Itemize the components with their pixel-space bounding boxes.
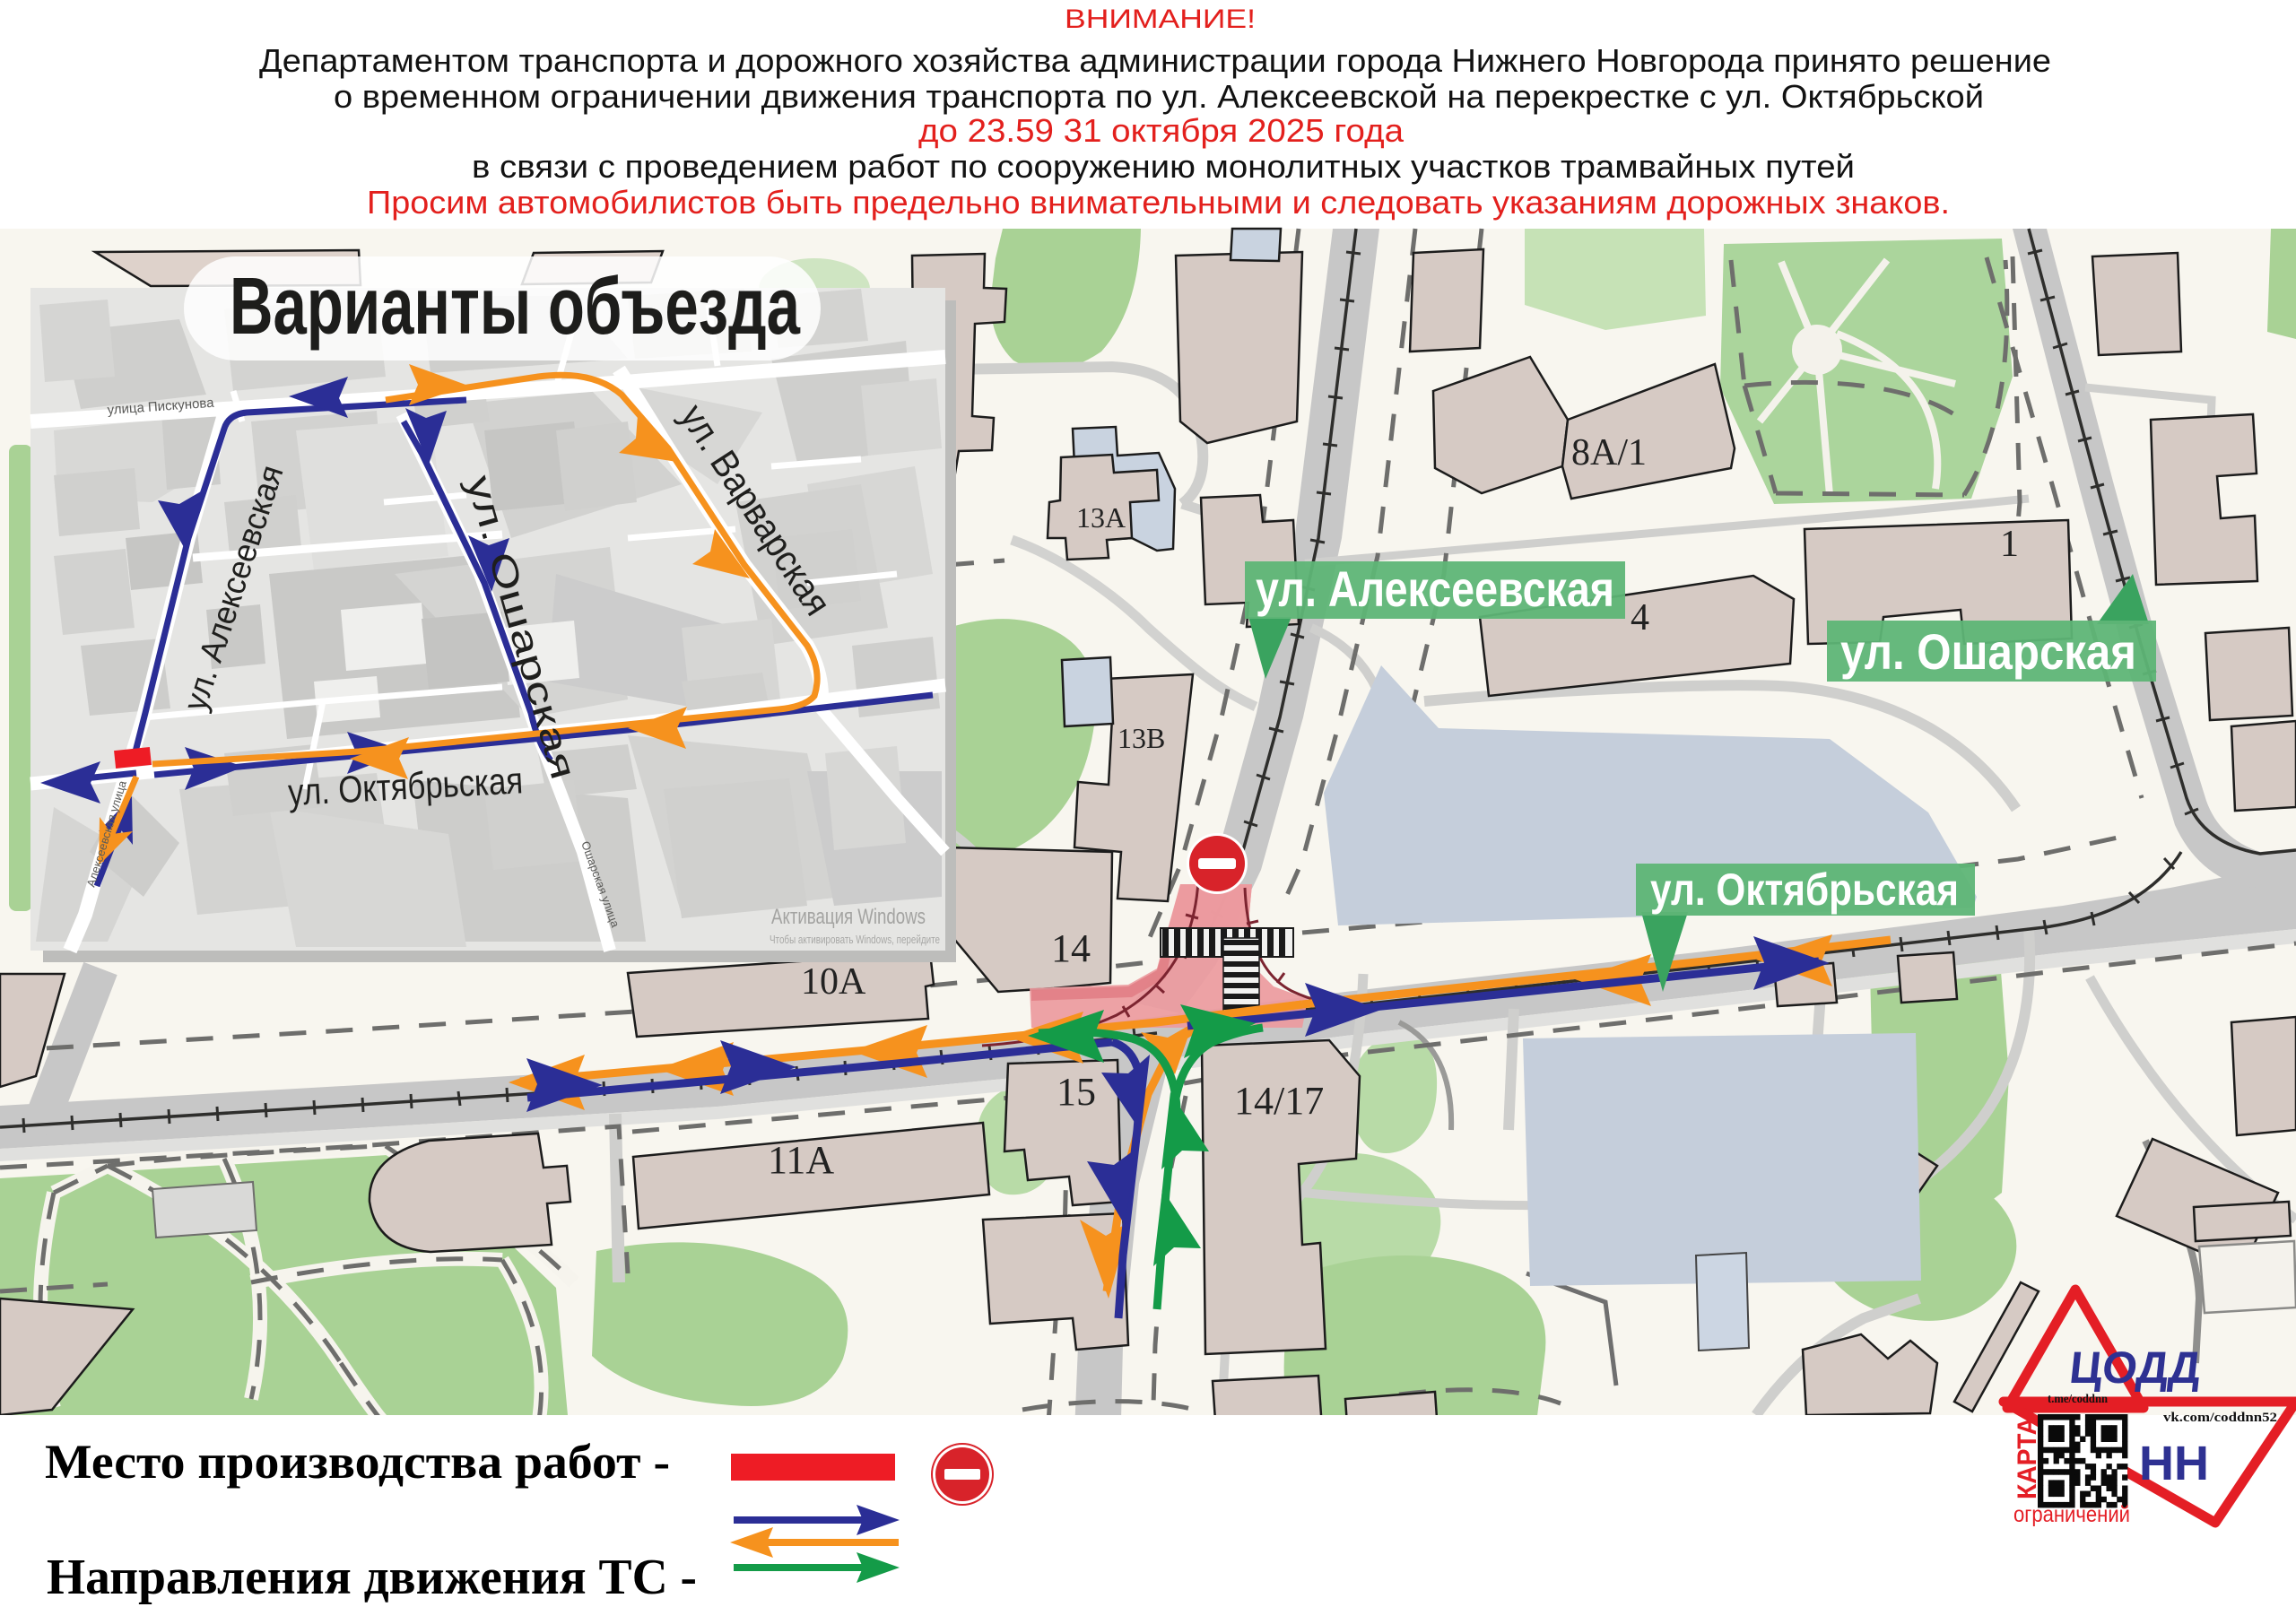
svg-text:1: 1 <box>2000 524 2019 565</box>
svg-text:ул. Ошарская: ул. Ошарская <box>1840 623 2136 680</box>
svg-text:КАРТА: КАРТА <box>2013 1417 2042 1499</box>
svg-text:t.me/coddnn: t.me/coddnn <box>2048 1393 2108 1406</box>
svg-text:в связи с проведением работ по: в связи с проведением работ по сооружени… <box>472 148 1855 185</box>
svg-text:Направления движения ТС -: Направления движения ТС - <box>47 1550 697 1605</box>
svg-text:8А/1: 8А/1 <box>1571 432 1647 473</box>
svg-text:15: 15 <box>1057 1070 1096 1114</box>
svg-text:vk.com/coddnn52: vk.com/coddnn52 <box>2163 1411 2277 1425</box>
svg-text:13В: 13В <box>1118 722 1165 754</box>
svg-text:13А: 13А <box>1076 501 1126 534</box>
svg-text:Просим автомобилистов быть пре: Просим автомобилистов быть предельно вни… <box>367 184 1950 221</box>
svg-text:ЦОДД: ЦОДД <box>2067 1342 2204 1393</box>
svg-text:ВНИМАНИЕ!: ВНИМАНИЕ! <box>1065 4 1256 34</box>
svg-text:10А: 10А <box>801 961 866 1003</box>
svg-text:о временном ограничении движен: о временном ограничении движения транспо… <box>334 78 1984 115</box>
svg-text:14/17: 14/17 <box>1234 1079 1324 1123</box>
svg-text:4: 4 <box>1631 597 1649 638</box>
svg-text:Активация Windows: Активация Windows <box>771 905 926 929</box>
svg-text:до 23.59 31 октября 2025 года: до 23.59 31 октября 2025 года <box>918 112 1405 149</box>
svg-text:14: 14 <box>1051 926 1091 970</box>
svg-text:Чтобы активировать Windows, пе: Чтобы активировать Windows, перейдите <box>770 933 940 946</box>
svg-text:ограничений: ограничений <box>2013 1502 2130 1527</box>
svg-text:Варианты объезда: Варианты объезда <box>230 262 801 352</box>
svg-text:ул. Октябрьская: ул. Октябрьская <box>1650 864 1959 915</box>
svg-text:11А: 11А <box>768 1138 834 1182</box>
svg-text:Место производства работ -: Место производства работ - <box>45 1435 670 1489</box>
svg-text:НН: НН <box>2139 1437 2209 1490</box>
svg-text:ул. Алексеевская: ул. Алексеевская <box>1256 560 1614 617</box>
svg-text:Департаментом транспорта и дор: Департаментом транспорта и дорожного хоз… <box>259 42 2051 79</box>
